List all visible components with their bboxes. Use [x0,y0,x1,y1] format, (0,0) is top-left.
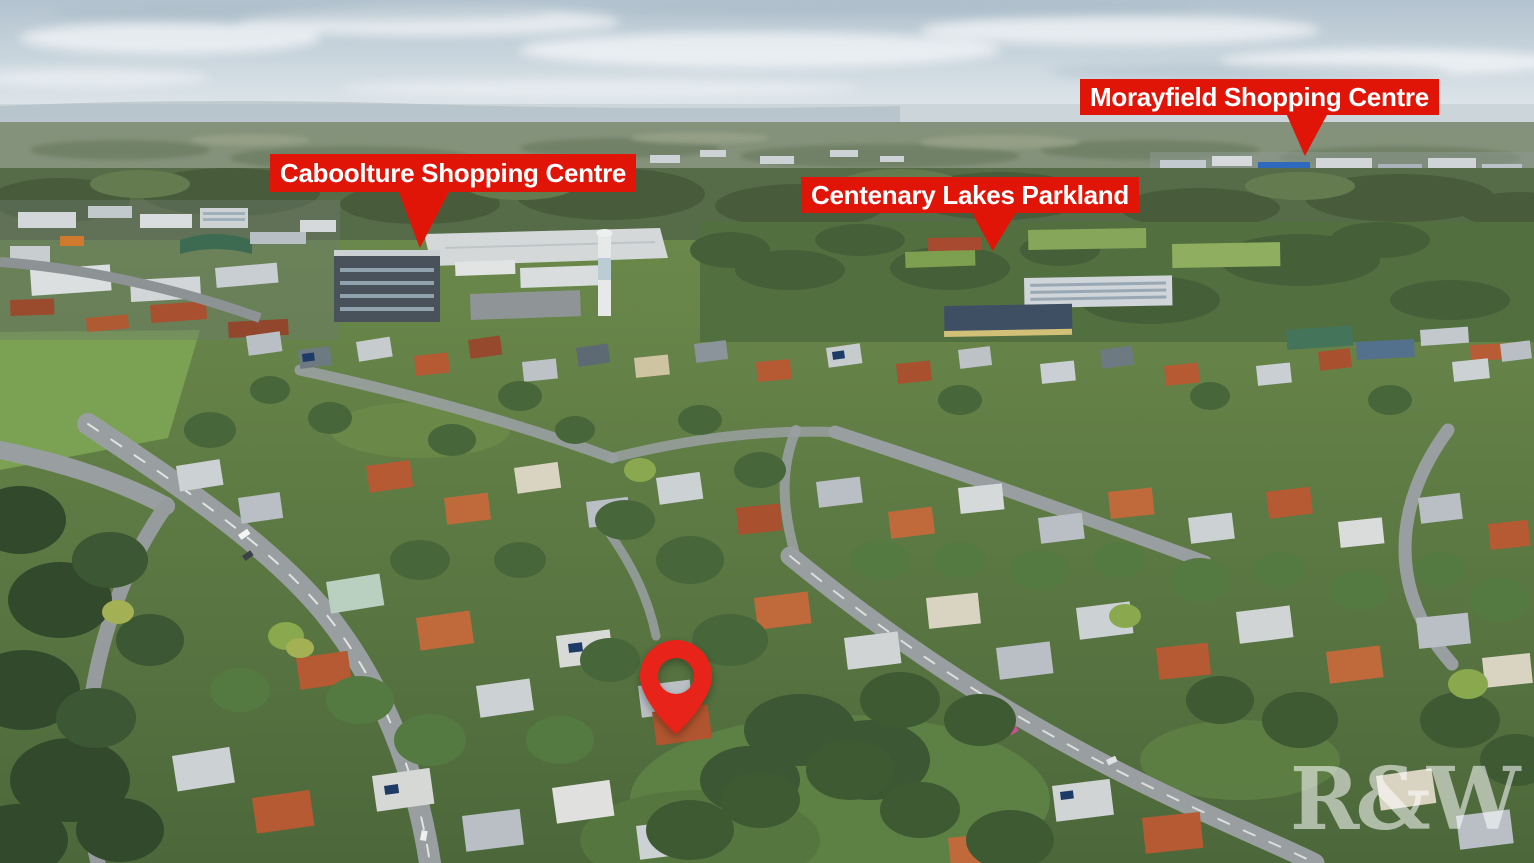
location-pin-icon [634,638,718,734]
annotated-aerial-photo: Caboolture Shopping Centre Morayfield Sh… [0,0,1534,863]
water-tower [597,229,613,316]
caboolture-town-buildings [0,200,340,340]
callout-centenary-lakes-parkland: Centenary Lakes Parkland [801,177,1139,213]
rw-watermark-logo: R&W [1290,757,1517,843]
callout-label: Centenary Lakes Parkland [811,180,1129,211]
callout-label: Morayfield Shopping Centre [1090,82,1429,113]
parkland-fields [690,222,1534,361]
callout-morayfield-shopping-centre: Morayfield Shopping Centre [1080,79,1439,115]
callout-caboolture-shopping-centre: Caboolture Shopping Centre [270,154,636,192]
callout-label: Caboolture Shopping Centre [280,158,626,189]
